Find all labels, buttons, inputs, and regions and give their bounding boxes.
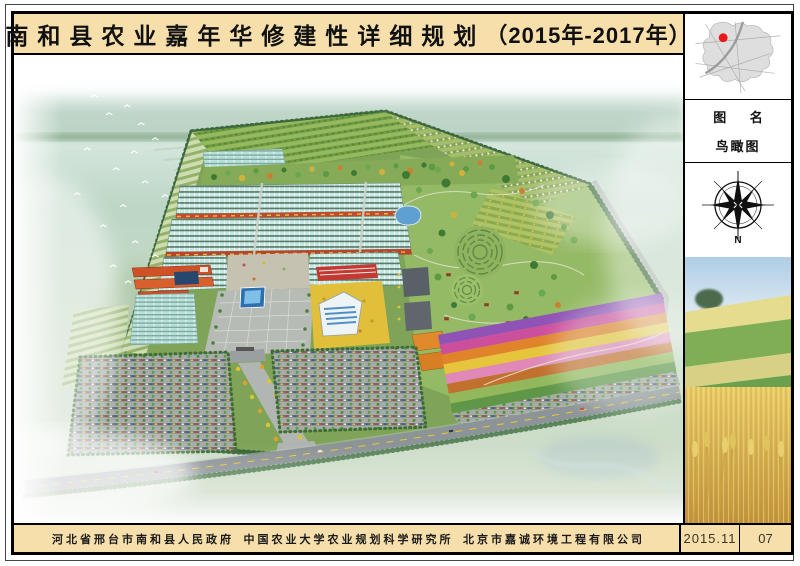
parking-lot-east <box>272 347 426 432</box>
site-location-dot <box>719 33 728 42</box>
pond <box>395 206 421 225</box>
page-title-period: （2015年-2017年） <box>485 18 691 50</box>
title-bar: 南和县农业嘉年华修建性详细规划（2015年-2017年） <box>14 14 683 55</box>
compass-box: N <box>685 163 791 257</box>
org-government: 河北省邢台市南和县人民政府 <box>52 531 234 547</box>
locator-map-svg <box>685 14 791 99</box>
org-company: 北京市嘉诚环境工程有限公司 <box>463 531 645 547</box>
drawing-name-box: 图 名 鸟瞰图 <box>685 100 791 163</box>
drawing-name-label: 图 名 <box>685 107 791 126</box>
fountain <box>240 287 265 308</box>
compass-north-label: N <box>685 235 791 246</box>
sheet-date: 2015.11 <box>681 525 740 552</box>
title-block-sidebar: 图 名 鸟瞰图 N <box>683 14 791 552</box>
wheat-photo <box>685 257 791 523</box>
footer-organizations: 河北省邢台市南和县人民政府 中国农业大学农业规划科学研究所 北京市嘉诚环境工程有… <box>14 525 681 552</box>
wheat-photo-svg <box>685 257 791 523</box>
birdseye-rendering-svg <box>14 55 683 523</box>
sheet-number: 07 <box>740 525 791 552</box>
birdseye-rendering <box>14 55 683 523</box>
drawing-sheet: 南和县农业嘉年华修建性详细规划（2015年-2017年） <box>0 0 800 566</box>
footer-bar: 河北省邢台市南和县人民政府 中国农业大学农业规划科学研究所 北京市嘉诚环境工程有… <box>14 523 791 552</box>
locator-map <box>685 14 791 100</box>
page-title: 南和县农业嘉年华修建性详细规划 <box>5 17 485 51</box>
drawing-name-value: 鸟瞰图 <box>685 136 791 155</box>
org-university: 中国农业大学农业规划科学研究所 <box>244 531 454 547</box>
